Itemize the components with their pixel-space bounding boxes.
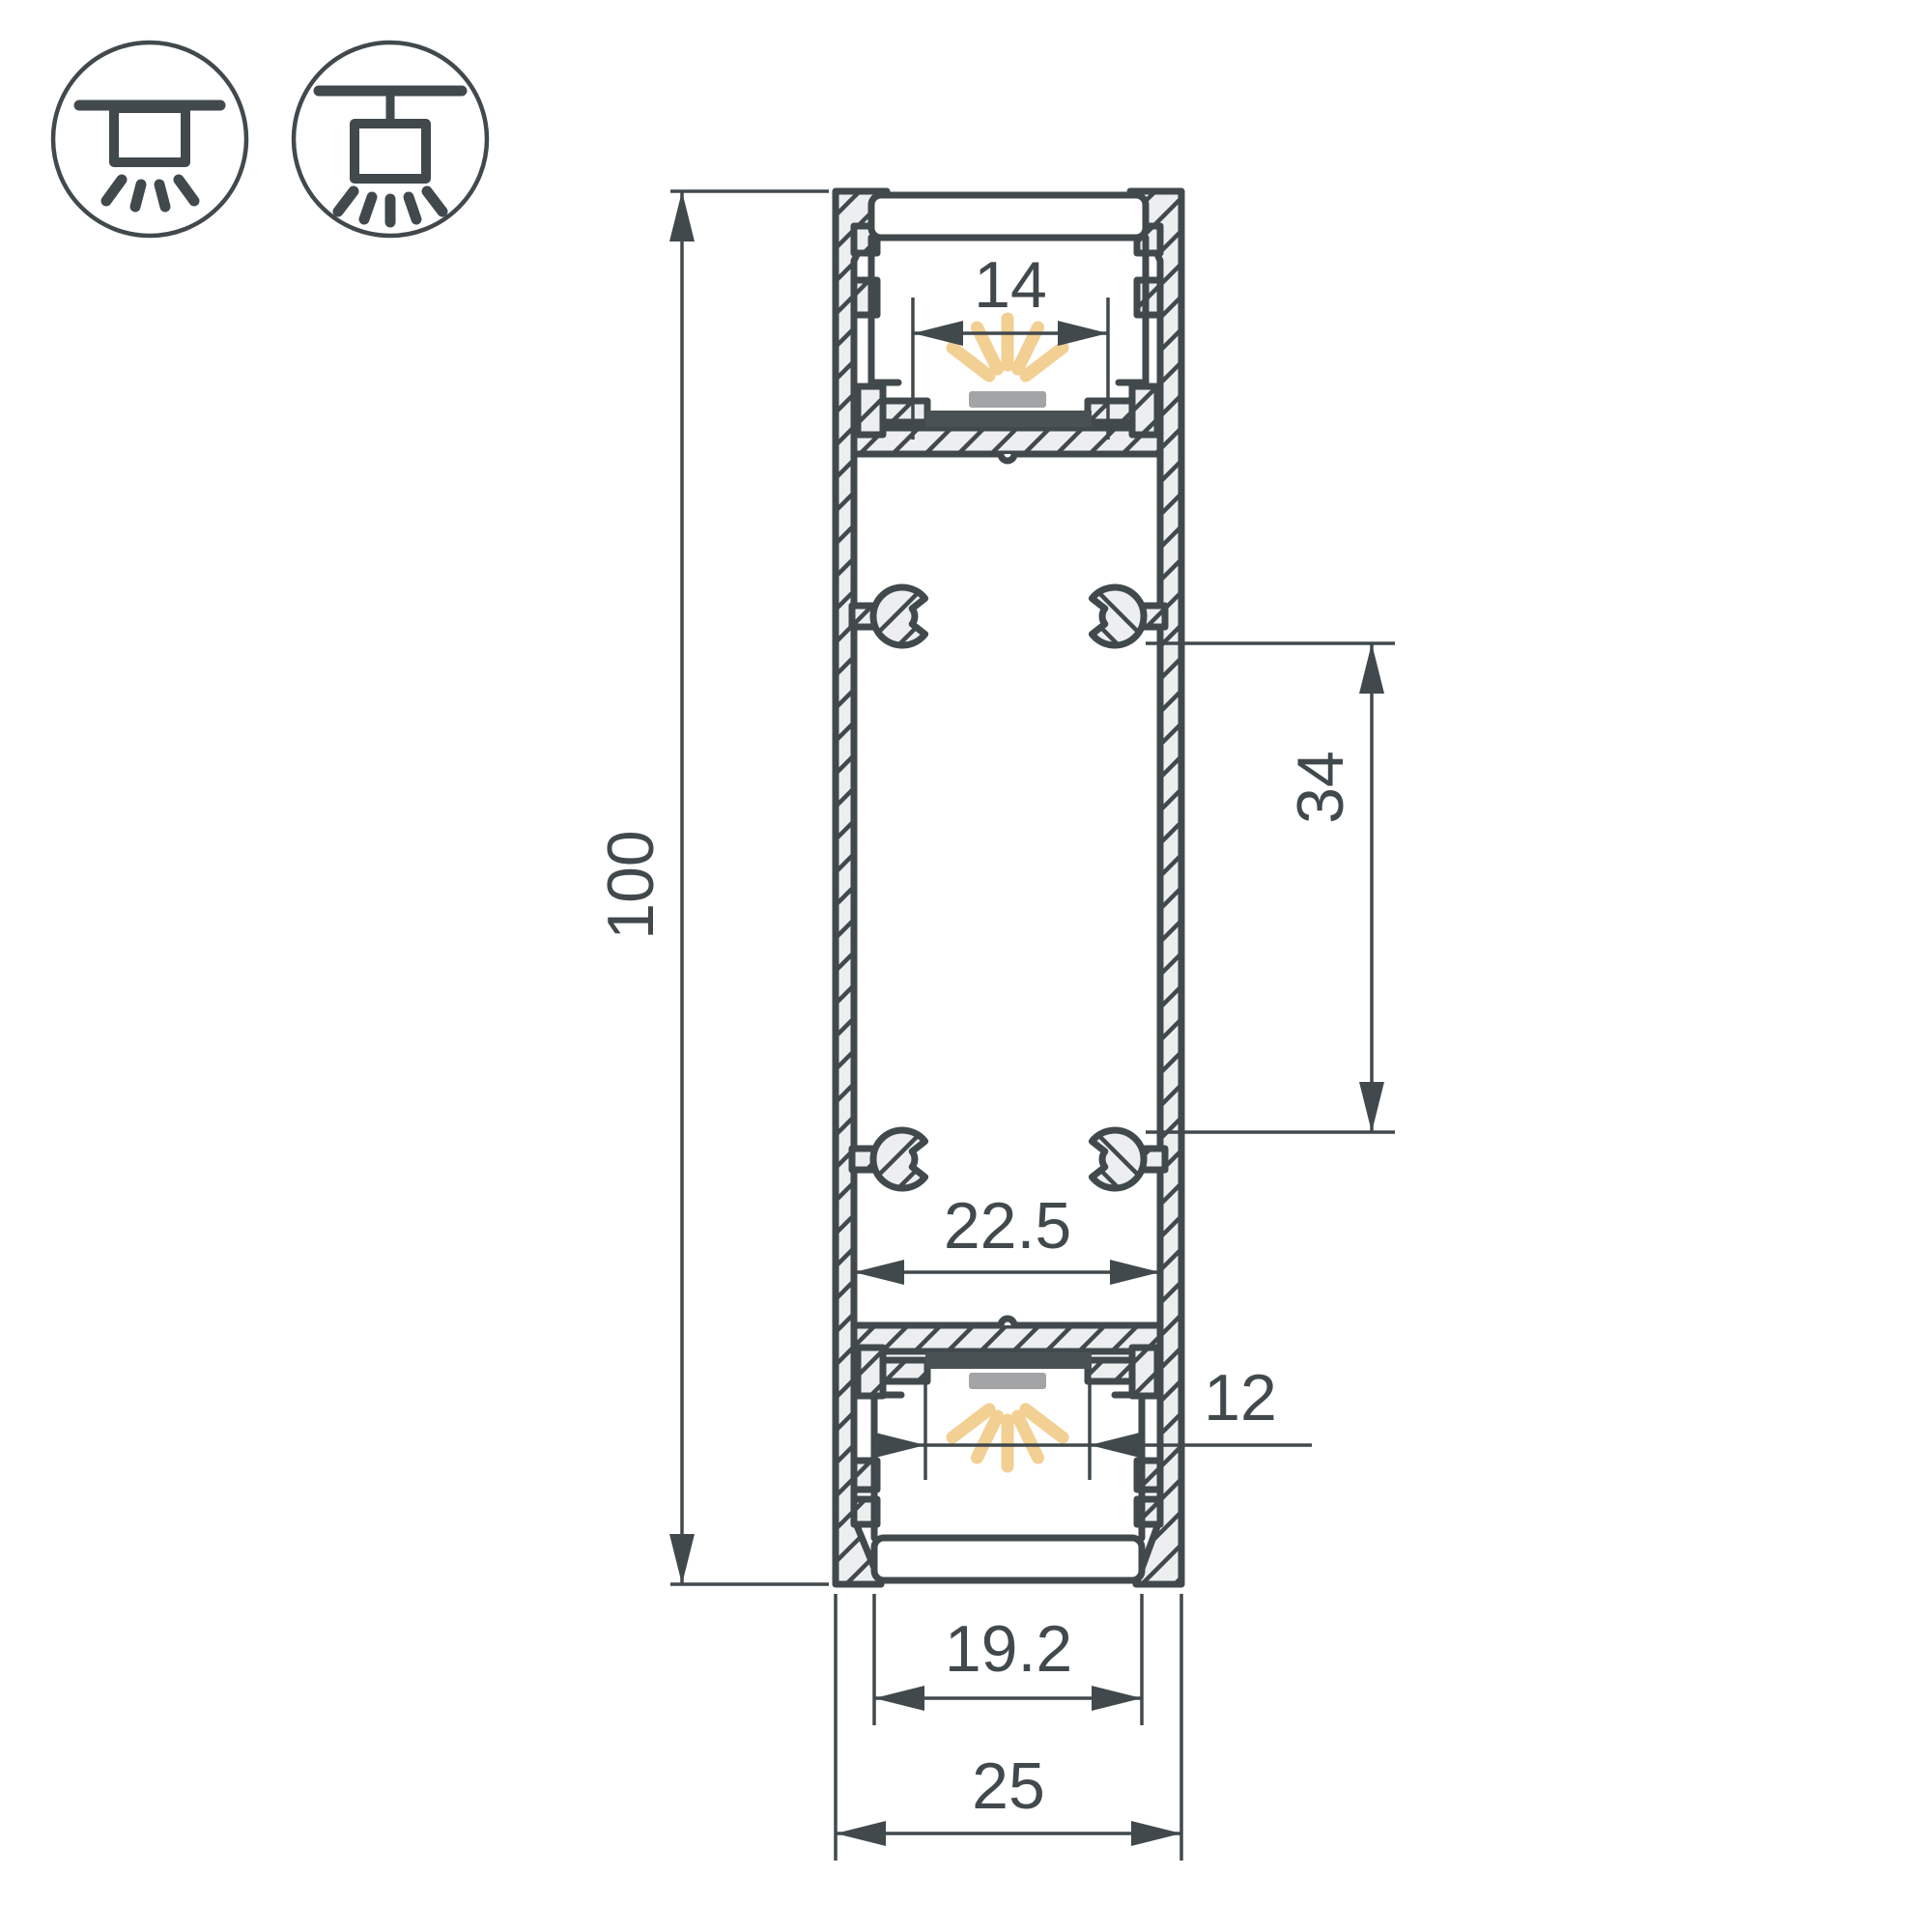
profile-cross-section [836,191,1181,1584]
top-diffuser-plate [871,195,1146,238]
dimension-inner-width: 22.5 [854,1189,1160,1285]
upper-divider [854,428,1160,454]
screw-boss-upper-left [873,587,925,645]
led-strip [969,391,1046,408]
suspended-luminaire-icon [294,43,487,236]
screw-boss-lower-left [873,1130,925,1188]
screw-boss-lower-right [1092,1130,1144,1188]
bottom-led-assembly [925,1352,1092,1466]
divider-notch [1001,1319,1014,1325]
light-rays [338,191,442,222]
screw-boss-upper-right [1092,587,1144,645]
dim-label-diffuser-width: 19.2 [945,1612,1072,1686]
dim-label-top-window: 14 [974,248,1047,322]
luminaire-box [355,124,426,179]
dim-label-bottom-window: 12 [1204,1361,1277,1435]
dim-label-boss-spacing: 34 [1284,751,1357,824]
light-rays-up [952,319,1063,376]
technical-drawing-canvas: 100 14 34 22.5 [0,0,1932,1932]
screw-bosses [873,587,1144,1188]
light-rays [106,180,194,207]
pcb-strip [925,411,1092,427]
lower-divider [854,1325,1160,1351]
led-strip [969,1373,1046,1389]
bottom-diffuser-plate [874,1538,1142,1580]
mount-type-icons [53,43,487,236]
luminaire-box [114,108,185,162]
pcb-strip [925,1352,1092,1369]
dim-label-height: 100 [594,830,668,939]
dim-label-overall-width: 25 [972,1749,1045,1823]
icon-circle [53,43,246,236]
dimension-height: 100 [594,191,829,1584]
surface-mount-luminaire-icon [53,43,246,236]
divider-notch [1001,454,1014,461]
screw-boss-necks [852,606,1165,1170]
dim-label-inner-width: 22.5 [944,1189,1071,1263]
dimension-diffuser-width: 19.2 [874,1594,1142,1725]
light-rays-down [952,1409,1063,1466]
